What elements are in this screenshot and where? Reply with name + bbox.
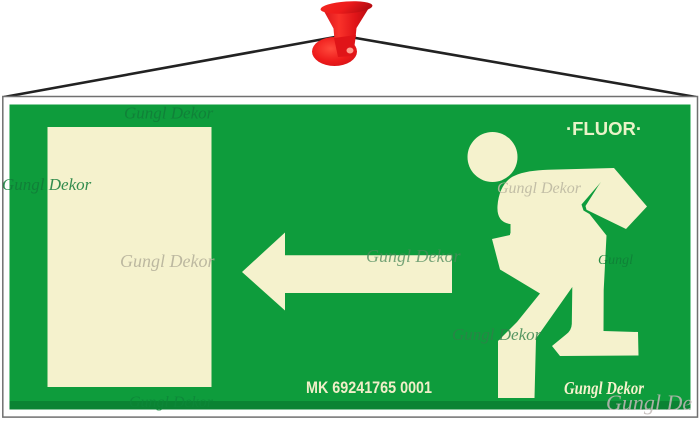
svg-text:MK 69241765 0001: MK 69241765 0001 [306,379,432,397]
svg-text:Gungl De: Gungl De [606,390,692,415]
svg-text:Gungl Dekor: Gungl Dekor [120,251,215,271]
svg-text:Gungl Dekor: Gungl Dekor [366,246,461,266]
svg-text:Gungl Dekor: Gungl Dekor [129,394,214,411]
svg-text:·FLUOR·: ·FLUOR· [566,118,642,139]
svg-text:Gungl Dekor: Gungl Dekor [2,175,92,194]
svg-text:Gungl: Gungl [598,253,633,268]
svg-text:Gungl Dekor: Gungl Dekor [452,325,542,344]
svg-text:Gungl Dekor: Gungl Dekor [124,104,214,123]
svg-text:Gungl Dekor: Gungl Dekor [497,180,582,197]
